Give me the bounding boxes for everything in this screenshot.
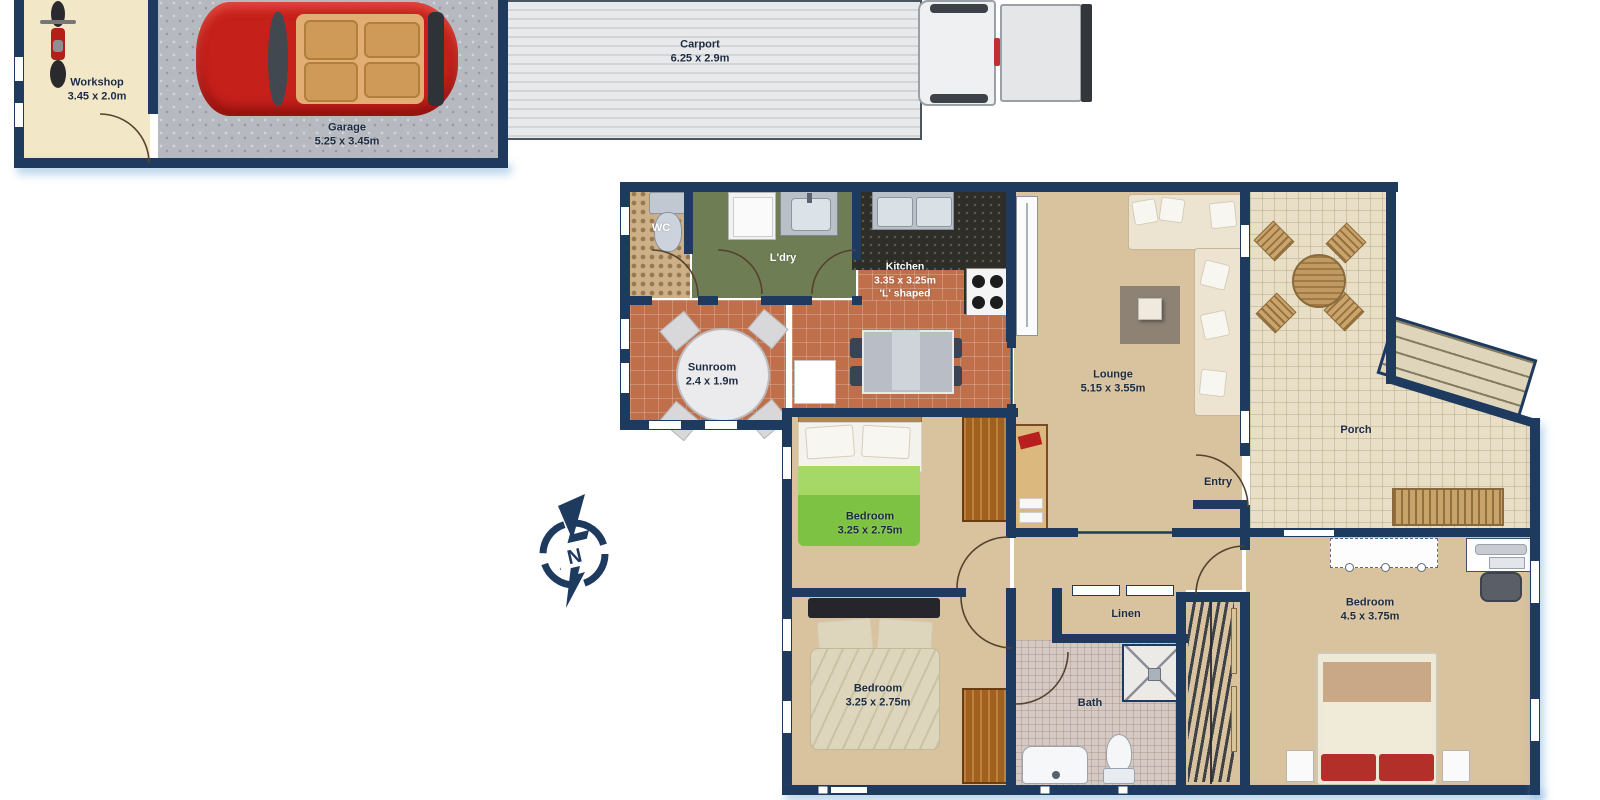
wall bbox=[852, 182, 861, 260]
bed-cream bbox=[808, 598, 940, 750]
truck-cab bbox=[918, 0, 996, 106]
toilet bbox=[1102, 734, 1134, 784]
kitchen-sink bbox=[872, 190, 954, 230]
label-bedroom-1: Bedroom3.25 x 2.75m bbox=[838, 510, 903, 539]
porch-table bbox=[1292, 254, 1346, 308]
wall bbox=[14, 158, 508, 168]
truck-icon bbox=[918, 0, 1092, 106]
wall bbox=[1052, 634, 1188, 643]
wall bbox=[1386, 182, 1396, 384]
wall bbox=[1240, 592, 1250, 786]
window bbox=[14, 102, 24, 128]
window bbox=[1240, 410, 1250, 444]
wall bbox=[761, 296, 812, 305]
car-rear-deck bbox=[428, 12, 444, 106]
wall bbox=[1240, 530, 1250, 550]
dresser bbox=[1330, 538, 1438, 568]
desk bbox=[1466, 538, 1534, 572]
floorplan: N Workshop3.45 x 2.0m Garage5.25 x 3.45m… bbox=[0, 0, 1600, 800]
robe-door bbox=[1231, 608, 1237, 674]
cooktop bbox=[966, 268, 1008, 316]
wall bbox=[782, 785, 1540, 795]
car-icon bbox=[196, 2, 458, 116]
wall bbox=[1178, 528, 1540, 537]
window bbox=[1283, 529, 1335, 537]
window bbox=[1530, 560, 1540, 604]
linen-shelf bbox=[1126, 585, 1174, 596]
window bbox=[620, 206, 630, 236]
compass-north-label: N bbox=[565, 545, 584, 570]
label-kitchen: Kitchen3.35 x 3.25m'L' shaped bbox=[874, 261, 936, 302]
shower bbox=[1122, 644, 1184, 702]
wall bbox=[852, 296, 862, 305]
label-bath: Bath bbox=[1078, 696, 1102, 710]
wall bbox=[1176, 592, 1186, 786]
compass-icon: N bbox=[528, 492, 620, 610]
label-lounge: Lounge5.15 x 3.55m bbox=[1081, 368, 1146, 397]
laundry-sink bbox=[780, 190, 838, 236]
window bbox=[1240, 224, 1250, 258]
wardrobe bbox=[962, 688, 1008, 784]
wall bbox=[1014, 528, 1072, 537]
label-linen: Linen bbox=[1111, 607, 1140, 621]
porch-bench bbox=[1392, 488, 1504, 526]
window bbox=[782, 618, 792, 652]
wall bbox=[1176, 592, 1248, 602]
window bbox=[782, 446, 792, 480]
carport-floor bbox=[506, 0, 922, 140]
window bbox=[704, 420, 738, 430]
dining-table bbox=[850, 324, 962, 396]
label-sunroom: Sunroom2.4 x 1.9m bbox=[686, 361, 739, 390]
label-wc: WC bbox=[652, 221, 670, 235]
wardrobe bbox=[962, 416, 1008, 522]
wall bbox=[14, 0, 24, 168]
label-bedroom-main: Bedroom4.5 x 3.75m bbox=[1341, 596, 1400, 625]
sofa-pillow bbox=[1209, 201, 1238, 230]
wall bbox=[782, 408, 1018, 417]
label-porch: Porch bbox=[1340, 423, 1371, 437]
side-table bbox=[1442, 750, 1470, 782]
lounge-cabinet bbox=[1016, 196, 1038, 336]
wall bbox=[1006, 408, 1016, 538]
side-table bbox=[1286, 750, 1314, 782]
wall bbox=[684, 182, 693, 254]
bath-vanity bbox=[1022, 746, 1088, 784]
wall bbox=[620, 296, 652, 305]
sofa-pillow bbox=[1199, 369, 1228, 398]
wall bbox=[698, 296, 718, 305]
window bbox=[620, 318, 630, 350]
window bbox=[830, 786, 868, 794]
sofa-pillow bbox=[1200, 310, 1231, 341]
washing-machine bbox=[728, 192, 776, 240]
truck-tray bbox=[1000, 4, 1082, 102]
dishwasher bbox=[794, 360, 836, 404]
window bbox=[14, 56, 24, 82]
wall bbox=[1006, 182, 1016, 342]
wall bbox=[498, 0, 508, 168]
car-cabin bbox=[296, 14, 424, 104]
label-laundry: L'dry bbox=[770, 251, 796, 265]
wall bbox=[782, 588, 966, 597]
window bbox=[648, 420, 682, 430]
wall bbox=[1006, 588, 1016, 786]
bed-main bbox=[1316, 652, 1438, 786]
desk-chair bbox=[1480, 572, 1522, 602]
hall-shelf bbox=[1014, 424, 1048, 534]
sofa-pillow bbox=[1131, 198, 1159, 226]
lounge-rug bbox=[1120, 286, 1180, 344]
label-workshop: Workshop3.45 x 2.0m bbox=[68, 76, 127, 105]
window bbox=[620, 362, 630, 394]
label-garage: Garage5.25 x 3.45m bbox=[315, 121, 380, 150]
robe-door bbox=[1231, 686, 1237, 752]
sofa-pillow bbox=[1158, 196, 1185, 223]
linen-shelf bbox=[1072, 585, 1120, 596]
label-entry: Entry bbox=[1204, 475, 1232, 489]
wall bbox=[1193, 500, 1247, 509]
car-windshield bbox=[268, 12, 288, 106]
wall bbox=[148, 0, 158, 114]
truck-tailgate bbox=[1081, 4, 1092, 102]
label-carport: Carport6.25 x 2.9m bbox=[671, 38, 730, 67]
window bbox=[1530, 698, 1540, 742]
window bbox=[782, 700, 792, 734]
label-bedroom-2: Bedroom3.25 x 2.75m bbox=[846, 682, 911, 711]
